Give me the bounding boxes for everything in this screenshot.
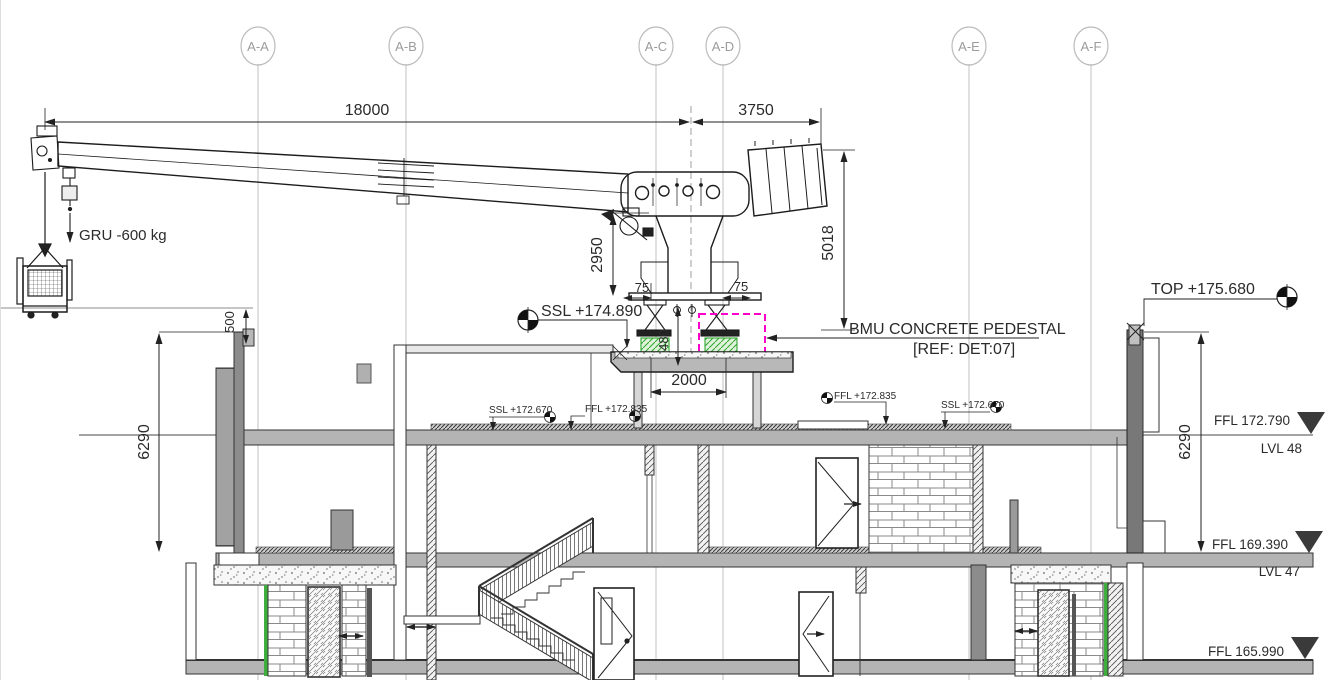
left-parapet-cap: [243, 329, 254, 346]
left-parapet-wall: [234, 332, 244, 553]
building-section: [186, 325, 1313, 680]
brick-left-b: [342, 585, 366, 676]
level-triangle-47: [1295, 531, 1323, 553]
label-lvl-47: LVL 47: [1259, 564, 1300, 579]
label-ffl-48-left: FFL +172.835: [585, 404, 648, 415]
roof-equipment-block: [357, 364, 371, 383]
crane-jack-right: [701, 300, 739, 352]
right-tower-wall: [1127, 330, 1143, 553]
concrete-band-left: [214, 565, 396, 585]
lvl48-screed: [431, 424, 1011, 430]
label-ffl-48-right: FFL +172.835: [834, 391, 897, 402]
elevator-door-46: [799, 592, 833, 676]
brick-wall-47: [869, 445, 973, 553]
concrete-band-right: [1011, 565, 1111, 583]
dim-offset-left: 75: [635, 280, 649, 295]
lvl48-slab: [216, 430, 1136, 445]
dim-mast-height: 2950: [589, 237, 606, 273]
level-symbol-top: [1277, 284, 1297, 310]
left-louver: [216, 368, 234, 546]
parapet-base-block: [331, 510, 353, 550]
dim-pedestal-spacing: 2000: [671, 372, 707, 389]
level-triangle-48: [1297, 412, 1325, 434]
wood-door-left: [308, 587, 340, 677]
dim-pedestal-height: 480: [656, 329, 671, 351]
stair-wall: [427, 445, 436, 680]
dim-right-height: 6290: [1177, 424, 1194, 460]
label-ffl-47: FFL 169.390: [1212, 537, 1288, 552]
dim-offset-right: 75: [734, 279, 748, 294]
column-46: [971, 565, 986, 660]
label-lvl-48: LVL 48: [1261, 441, 1302, 456]
grid-bubble-labels: A-A A-B A-C A-D A-E A-F: [247, 39, 1101, 54]
label-ssl-48-left: SSL +172.670: [489, 405, 553, 416]
label-ffl-46: FFL 165.990: [1208, 644, 1284, 659]
level-symbol-ssl-pedestal: [518, 307, 538, 333]
gru-load-marker: [62, 178, 77, 242]
grid-label-aa: A-A: [247, 39, 269, 54]
door-47: [816, 458, 861, 548]
section-drawing: A-A A-B A-C A-D A-E A-F: [1, 0, 1332, 680]
roof-plinth: [798, 421, 868, 429]
machine-room-left-wall: [394, 345, 406, 660]
label-top-parapet: TOP +175.680: [1151, 281, 1255, 298]
elevator-jamb: [856, 567, 866, 593]
label-pedestal-note-2: [REF: DET:07]: [913, 341, 1015, 358]
section-drawing-canvas: A-A A-B A-C A-D A-E A-F: [0, 0, 1332, 680]
label-ffl-48: FFL 172.790: [1214, 413, 1290, 428]
dim-parapet-offset: 500: [222, 311, 237, 333]
grid-label-ad: A-D: [712, 39, 734, 54]
wood-door-right: [1038, 590, 1069, 676]
label-crane-load: GRU -600 kg: [79, 227, 167, 244]
doors: [594, 458, 861, 680]
crane-turret: [621, 172, 749, 216]
machine-room-roof: [396, 345, 613, 353]
crane-counterweight: [748, 138, 827, 216]
label-ssl-48-right: SSL +172.670: [941, 400, 1005, 411]
dim-counterweight-height: 5018: [820, 225, 837, 261]
label-pedestal-note-1: BMU CONCRETE PEDESTAL: [849, 321, 1066, 338]
grid-label-ae: A-E: [958, 39, 980, 54]
crane-jib-tip-hoist: [31, 126, 75, 178]
level-triangle-46: [1291, 637, 1319, 659]
label-ssl-pedestal: SSL +174.890: [541, 303, 642, 320]
dim-counter-jib: 3750: [738, 102, 774, 119]
brick-left-a: [268, 585, 306, 676]
dim-jib-reach: 18000: [345, 102, 390, 119]
crane-jib: [58, 142, 628, 212]
lvl47-screed-left: [256, 547, 396, 553]
stair-door-46: [594, 588, 634, 680]
dim-left-height: 6290: [136, 424, 153, 460]
grid-label-ab: A-B: [395, 39, 417, 54]
grid-label-af: A-F: [1081, 39, 1102, 54]
grid-label-ac: A-C: [645, 39, 667, 54]
